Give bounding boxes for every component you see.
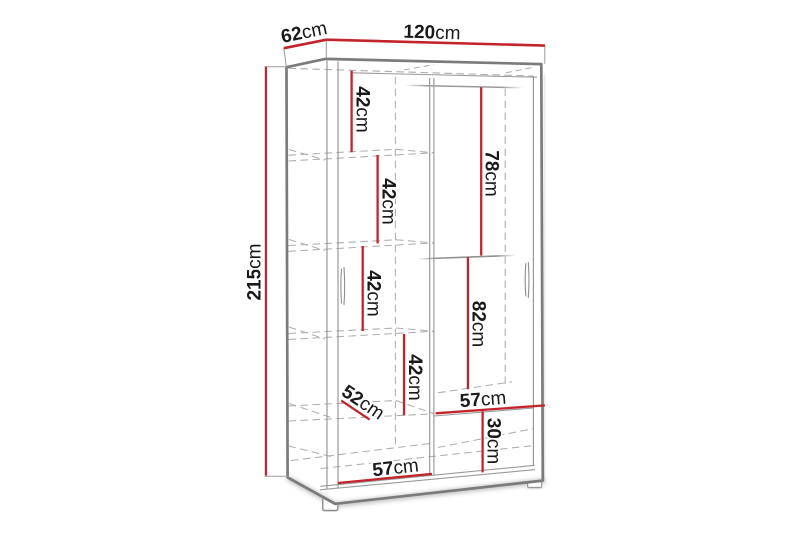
svg-text:42cm: 42cm [378, 178, 399, 224]
svg-text:215cm: 215cm [244, 243, 265, 300]
svg-text:42cm: 42cm [363, 270, 384, 316]
svg-text:82cm: 82cm [468, 301, 489, 347]
svg-text:42cm: 42cm [352, 86, 373, 132]
svg-text:42cm: 42cm [405, 354, 426, 400]
svg-text:78cm: 78cm [481, 150, 502, 196]
svg-text:120cm: 120cm [403, 21, 461, 44]
svg-text:30cm: 30cm [483, 418, 504, 464]
svg-text:57cm: 57cm [459, 387, 507, 411]
